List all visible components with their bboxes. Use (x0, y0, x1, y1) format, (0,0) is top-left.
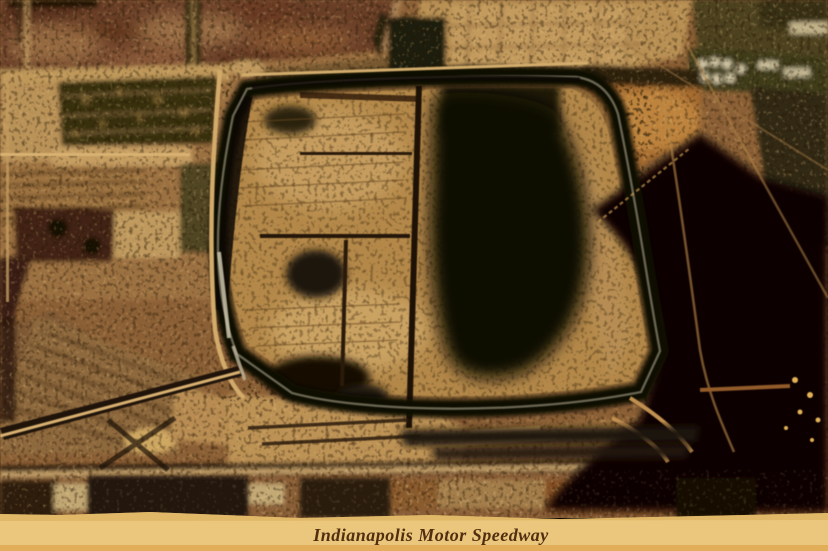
svg-text:Indianapolis Motor Speedway: Indianapolis Motor Speedway (312, 525, 549, 545)
